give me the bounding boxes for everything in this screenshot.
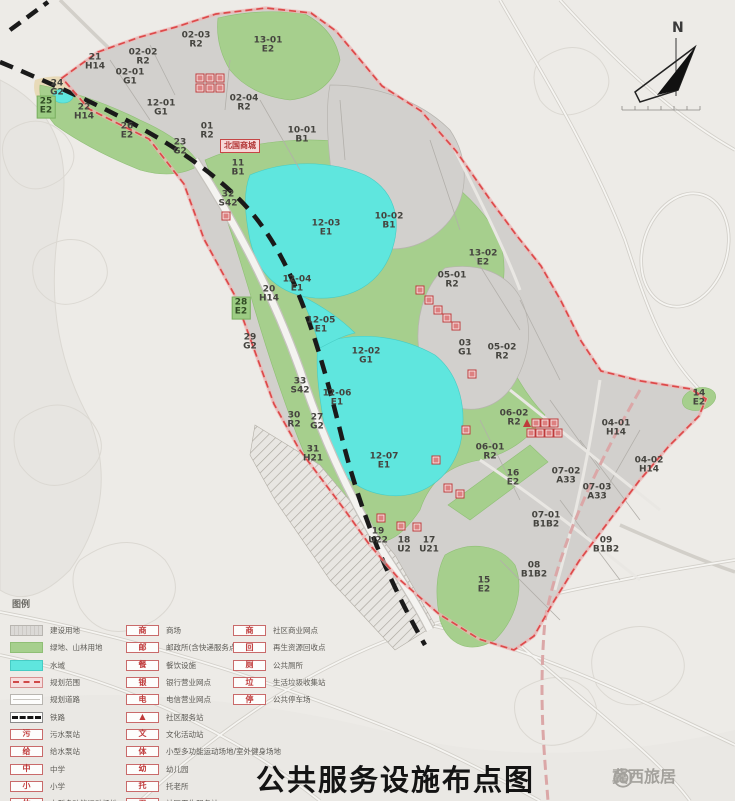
legend-icon-swatch: 污 [10, 729, 43, 740]
legend-row: 建设用地 [10, 622, 118, 639]
legend-label: 中学 [50, 764, 65, 775]
legend-row: 规划道路 [10, 691, 118, 708]
legend-glyph-icon: 停 [246, 696, 254, 704]
legend-icon-swatch: 托 [126, 781, 159, 792]
facility-icon [550, 419, 559, 428]
legend-glyph-icon: 电 [139, 696, 147, 704]
facility-icon [468, 370, 477, 379]
legend-label: 社区商业网点 [273, 625, 318, 636]
weibo-swirl-icon [612, 767, 634, 789]
legend-row: 体中型多功能运动场地 [10, 795, 118, 801]
legend-glyph-icon: 中 [23, 765, 31, 773]
legend-title: 图例 [12, 601, 30, 610]
legend-glyph-icon: 邮 [139, 644, 147, 652]
legend-column-services: 商社区商业网点回再生资源回收点厕公共厕所垃生活垃圾收集站停公共停车场 [233, 622, 326, 708]
legend-label: 文化活动站 [166, 729, 204, 740]
legend-label: 规划道路 [50, 694, 80, 705]
facility-icon [432, 456, 441, 465]
facility-icon [196, 74, 205, 83]
legend-green-swatch [10, 642, 43, 653]
legend-urban-swatch [10, 625, 43, 636]
facility-icon [462, 426, 471, 435]
facility-icon [206, 74, 215, 83]
legend-row: 体小型多功能运动场地/室外健身场地 [126, 743, 281, 760]
facility-icon [222, 212, 231, 221]
landmark-label: 北国商城 [220, 139, 260, 153]
legend-icon-swatch: 停 [233, 694, 266, 705]
legend-label: 水域 [50, 660, 65, 671]
legend-icon-swatch: 邮 [126, 642, 159, 653]
legend-icon-swatch: 商 [233, 625, 266, 636]
legend-road-swatch [10, 694, 43, 705]
legend-glyph-icon: 垃 [246, 679, 254, 687]
legend-label: 再生资源回收点 [273, 642, 326, 653]
legend-label: 商场 [166, 625, 181, 636]
legend-icon-swatch: 垃 [233, 677, 266, 688]
legend-glyph-icon: 文 [139, 730, 147, 738]
legend-label: 小学 [50, 781, 65, 792]
facility-icon [216, 84, 225, 93]
legend-icon-swatch: 文 [126, 729, 159, 740]
legend-glyph-icon: 体 [139, 748, 147, 756]
legend-glyph-icon: ▲ [139, 713, 145, 721]
facility-icon [541, 419, 550, 428]
facility-icon [216, 74, 225, 83]
facility-icon [443, 314, 452, 323]
legend-label: 铁路 [50, 712, 65, 723]
legend-row: ▲社区服务站 [126, 708, 281, 725]
legend-label: 生活垃圾收集站 [273, 677, 326, 688]
legend-row: 污污水泵站 [10, 726, 118, 743]
legend-glyph-icon: 污 [23, 730, 31, 738]
legend-glyph-icon: 幼 [139, 765, 147, 773]
legend-row: 厕公共厕所 [233, 657, 326, 674]
legend-glyph-icon: 商 [139, 627, 147, 635]
legend-row: 铁路 [10, 708, 118, 725]
legend-glyph-icon: 给 [23, 748, 31, 756]
legend-label: 托老所 [166, 781, 189, 792]
legend-icon-swatch: 小 [10, 781, 43, 792]
facility-icon [196, 84, 205, 93]
legend-rail-swatch [10, 712, 43, 723]
legend-water-swatch [10, 660, 43, 671]
legend-icon-swatch: ▲ [126, 712, 159, 723]
facility-icon [452, 322, 461, 331]
legend-label: 小型多功能运动场地/室外健身场地 [166, 746, 281, 757]
legend-icon-swatch: 餐 [126, 660, 159, 671]
legend-label: 污水泵站 [50, 729, 80, 740]
facility-icon [434, 306, 443, 315]
legend-row: 给给水泵站 [10, 743, 118, 760]
legend-label: 公共厕所 [273, 660, 303, 671]
map-title: 公共服务设施布点图 [256, 766, 535, 795]
legend-label: 建设用地 [50, 625, 80, 636]
facility-icon [413, 523, 422, 532]
legend-row: 文文化活动站 [126, 726, 281, 743]
legend-row: 回再生资源回收点 [233, 639, 326, 656]
facility-icon [536, 429, 545, 438]
legend-glyph-icon: 商 [246, 627, 254, 635]
facility-icon [456, 490, 465, 499]
legend-row: 规划范围 [10, 674, 118, 691]
facility-icon [377, 514, 386, 523]
legend-icon-swatch: 中 [10, 764, 43, 775]
legend-column-areas: 建设用地绿地、山林用地水域规划范围规划道路铁路污污水泵站给给水泵站中中学小小学体… [10, 622, 118, 801]
legend-icon-swatch: 幼 [126, 764, 159, 775]
legend-row: 停公共停车场 [233, 691, 326, 708]
legend-icon-swatch: 电 [126, 694, 159, 705]
legend-label: 社区服务站 [166, 712, 204, 723]
facility-icon [545, 429, 554, 438]
facility-icon [532, 419, 541, 428]
legend-label: 公共停车场 [273, 694, 311, 705]
legend-glyph-icon: 厕 [246, 661, 254, 669]
legend-row: 水域 [10, 657, 118, 674]
watermark: 冀西旅居 [612, 767, 676, 786]
legend-icon-swatch: 给 [10, 746, 43, 757]
legend-row: 中中学 [10, 760, 118, 777]
facility-icon [397, 522, 406, 531]
legend-label: 电信营业网点 [166, 694, 211, 705]
facility-icon [444, 484, 453, 493]
legend-label: 餐饮设施 [166, 660, 196, 671]
legend-glyph-icon: 托 [139, 782, 147, 790]
legend-icon-swatch: 商 [126, 625, 159, 636]
legend-icon-swatch: 体 [126, 746, 159, 757]
legend-glyph-icon: 银 [139, 679, 147, 687]
facility-icon [527, 429, 536, 438]
legend-label: 幼儿园 [166, 764, 189, 775]
legend-icon-swatch: 银 [126, 677, 159, 688]
facility-icon [425, 296, 434, 305]
legend-icon-swatch: 回 [233, 642, 266, 653]
legend-label: 规划范围 [50, 677, 80, 688]
facility-icon [554, 429, 563, 438]
legend-label: 给水泵站 [50, 746, 80, 757]
legend-label: 银行营业网点 [166, 677, 211, 688]
facility-icon [416, 286, 425, 295]
community-station-triangle-icon [523, 419, 531, 427]
legend-boundary-swatch [10, 677, 43, 688]
legend-icon-swatch: 厕 [233, 660, 266, 671]
legend-label: 邮政所(含快递服务点) [166, 642, 239, 653]
legend-row: 绿地、山林用地 [10, 639, 118, 656]
legend-row: 小小学 [10, 778, 118, 795]
planning-map-canvas: N 02-03R213-01E221H1402-02R202-01G124G22… [0, 0, 735, 801]
legend-glyph-icon: 回 [246, 644, 254, 652]
legend-row: 商社区商业网点 [233, 622, 326, 639]
facility-icon [206, 84, 215, 93]
legend-label: 绿地、山林用地 [50, 642, 103, 653]
legend-glyph-icon: 餐 [139, 661, 147, 669]
legend-glyph-icon: 小 [23, 782, 31, 790]
legend-row: 垃生活垃圾收集站 [233, 674, 326, 691]
